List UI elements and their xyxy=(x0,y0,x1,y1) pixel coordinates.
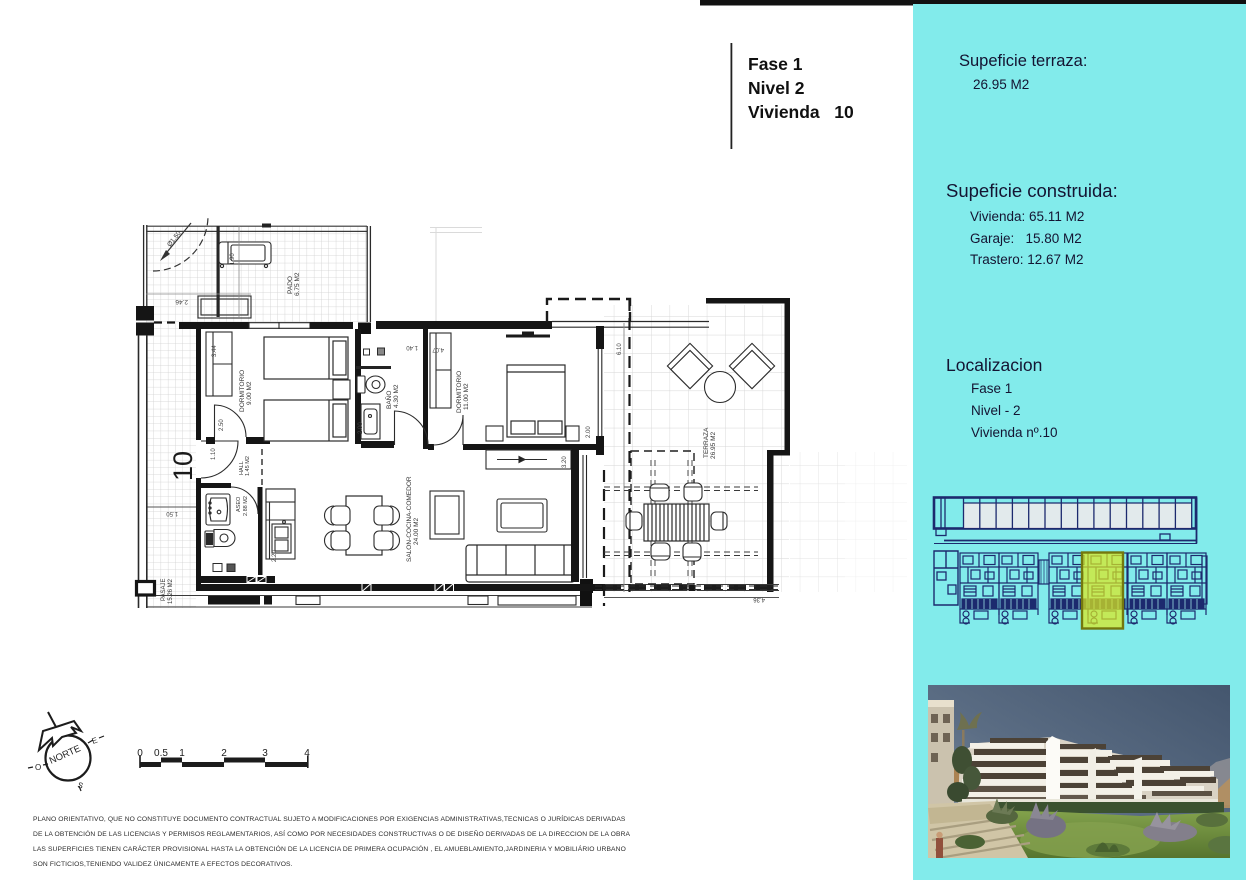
svg-text:11.00 M2: 11.00 M2 xyxy=(463,383,470,410)
svg-text:Vivienda nº.10: Vivienda nº.10 xyxy=(971,425,1058,440)
svg-text:SON FICTICIOS,TENIENDO VALIDEZ: SON FICTICIOS,TENIENDO VALIDEZ ÚNICAMENT… xyxy=(33,859,293,868)
svg-text:TERRAZA: TERRAZA xyxy=(703,427,710,458)
svg-text:15.26 M2: 15.26 M2 xyxy=(168,578,174,604)
svg-text:4.07: 4.07 xyxy=(432,346,444,352)
svg-text:2.46: 2.46 xyxy=(175,298,188,305)
svg-text:2.50: 2.50 xyxy=(219,419,225,431)
svg-text:Fase 1: Fase 1 xyxy=(971,381,1012,396)
svg-text:1.10: 1.10 xyxy=(211,448,217,460)
svg-text:1.90: 1.90 xyxy=(230,253,236,265)
svg-text:DORMITORIO: DORMITORIO xyxy=(239,370,246,412)
svg-text:Vivienda 10: Vivienda 10 xyxy=(748,102,854,122)
svg-text:3.44: 3.44 xyxy=(212,345,218,357)
svg-text:1.50: 1.50 xyxy=(166,510,178,516)
svg-text:PLANO ORIENTATIVO, QUE NO CONS: PLANO ORIENTATIVO, QUE NO CONSTITUYE DOC… xyxy=(33,814,626,823)
svg-text:26.95 M2: 26.95 M2 xyxy=(710,432,717,459)
svg-text:3.20: 3.20 xyxy=(562,456,568,468)
svg-text:1: 1 xyxy=(179,748,185,759)
svg-text:Nivel 2: Nivel 2 xyxy=(748,78,805,98)
svg-text:1.40: 1.40 xyxy=(406,344,418,350)
svg-text:Vivienda: 65.11 M2: Vivienda: 65.11 M2 xyxy=(970,209,1084,224)
svg-text:Localizacion: Localizacion xyxy=(946,355,1042,375)
svg-text:Supeficie construida:: Supeficie construida: xyxy=(946,180,1118,201)
svg-text:1.45 M2: 1.45 M2 xyxy=(245,456,251,476)
svg-text:PADO: PADO xyxy=(287,276,294,294)
svg-text:24.00 M2: 24.00 M2 xyxy=(413,518,420,545)
svg-text:SALON-COCINA-COMEDOR: SALON-COCINA-COMEDOR xyxy=(406,476,413,562)
svg-text:LAS SUPERFICIES TIENEN CARÁCTE: LAS SUPERFICIES TIENEN CARÁCTER PROVISIO… xyxy=(33,844,626,853)
svg-text:BAÑO: BAÑO xyxy=(384,391,393,409)
svg-text:Garaje: 15.80 M2: Garaje: 15.80 M2 xyxy=(970,231,1082,246)
svg-text:2.20: 2.20 xyxy=(272,550,278,562)
svg-text:2.00: 2.00 xyxy=(358,422,364,434)
svg-text:2.88 M2: 2.88 M2 xyxy=(243,496,249,516)
svg-text:Fase 1: Fase 1 xyxy=(748,54,803,74)
svg-text:26.95 M2: 26.95 M2 xyxy=(973,77,1029,92)
svg-text:Trastero: 12.67 M2: Trastero: 12.67 M2 xyxy=(970,252,1084,267)
svg-text:9.00 M2: 9.00 M2 xyxy=(246,381,253,405)
svg-text:Supeficie terraza:: Supeficie terraza: xyxy=(959,52,1087,70)
svg-text:2.00: 2.00 xyxy=(586,426,592,438)
svg-text:ASEO: ASEO xyxy=(236,496,242,512)
svg-text:6.75 M2: 6.75 M2 xyxy=(294,272,301,296)
svg-text:2: 2 xyxy=(221,748,227,759)
svg-text:6.10: 6.10 xyxy=(617,343,623,355)
svg-text:PASAJE: PASAJE xyxy=(161,578,167,601)
svg-text:O: O xyxy=(35,763,41,772)
svg-text:10: 10 xyxy=(168,451,198,481)
svg-text:4.30 M2: 4.30 M2 xyxy=(393,384,400,408)
svg-text:DE LA OBTENCIÓN DE LAS LICENCI: DE LA OBTENCIÓN DE LAS LICENCIAS Y PERMI… xyxy=(33,829,631,838)
svg-text:4.36: 4.36 xyxy=(753,596,765,602)
svg-text:3: 3 xyxy=(262,748,268,759)
svg-text:0.5: 0.5 xyxy=(154,748,168,759)
svg-text:Nivel - 2: Nivel - 2 xyxy=(971,403,1021,418)
svg-text:DORMITORIO: DORMITORIO xyxy=(456,371,463,413)
